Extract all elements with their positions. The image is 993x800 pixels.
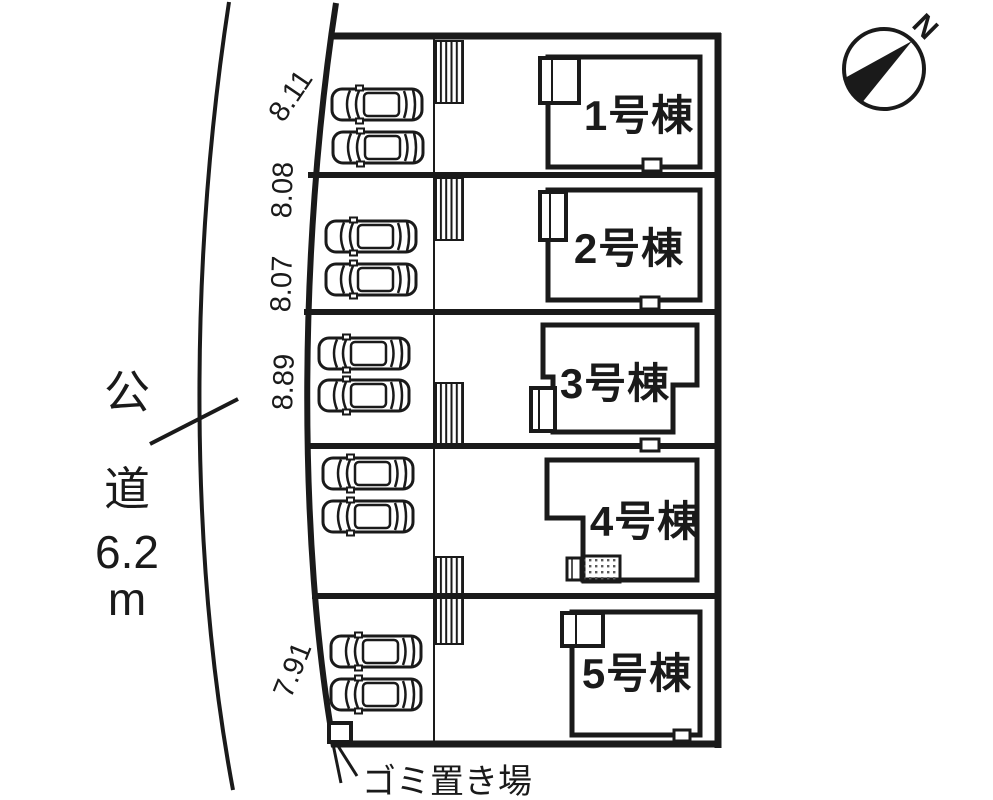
car-top-view-icon — [319, 377, 409, 415]
steps-hatch-icon — [436, 557, 463, 644]
meter-box — [674, 730, 690, 741]
leader-line — [338, 746, 357, 776]
frontage-dim-5: 7.91 — [268, 638, 319, 702]
building-3: 3号棟 — [531, 325, 697, 451]
frontage-dim-2: 8.08 — [266, 161, 300, 219]
building-2-label: 2号棟 — [574, 225, 684, 272]
frontage-dimensions: 8.11 8.08 8.07 8.89 7.91 — [263, 65, 320, 703]
building-1: 1号棟 — [540, 57, 700, 171]
building-3-label: 3号棟 — [560, 360, 670, 407]
building-5-label: 5号棟 — [582, 650, 692, 697]
road-tick-mark — [150, 399, 238, 444]
car-top-view-icon — [332, 86, 422, 124]
entrance-porch — [540, 192, 566, 240]
entrance-porch — [562, 613, 603, 646]
meter-box — [643, 159, 661, 171]
frontage-dim-1: 8.11 — [263, 65, 320, 128]
frontage-dim-3: 8.07 — [265, 255, 299, 313]
garbage-area: ゴミ置き場 — [329, 723, 532, 800]
building-4: 4号棟 — [547, 460, 700, 582]
road-left-edge — [199, 2, 233, 790]
meter-box — [641, 439, 659, 451]
hatch-strips — [436, 41, 463, 644]
north-compass: N — [843, 8, 944, 109]
car-top-view-icon — [323, 498, 413, 536]
car-top-view-icon — [326, 218, 416, 256]
parking-cars — [319, 86, 423, 714]
road-label-char: 道 — [104, 463, 150, 515]
car-top-view-icon — [331, 633, 421, 671]
car-top-view-icon — [333, 129, 423, 167]
entrance-porch — [531, 388, 555, 431]
car-top-view-icon — [331, 676, 421, 714]
road-label-char: 公 — [104, 366, 150, 418]
site-plan: 公 道 6.2 m — [0, 0, 993, 800]
road-label: 公 道 6.2 m — [95, 366, 159, 625]
garbage-area-marker — [329, 723, 351, 742]
steps-hatch-icon — [436, 383, 463, 445]
building-5: 5号棟 — [562, 612, 700, 741]
road-label-char: 6.2 — [95, 526, 159, 578]
entrance-step — [567, 558, 581, 580]
entrance-porch — [540, 58, 579, 103]
building-2: 2号棟 — [540, 190, 700, 309]
steps-hatch-icon — [436, 178, 463, 240]
car-top-view-icon — [326, 261, 416, 299]
garbage-area-label: ゴミ置き場 — [362, 763, 532, 800]
frontage-dim-4: 8.89 — [267, 353, 301, 411]
car-top-view-icon — [319, 335, 409, 373]
public-road — [150, 2, 238, 790]
building-1-label: 1号棟 — [584, 92, 694, 139]
building-4-label: 4号棟 — [590, 498, 700, 545]
car-top-view-icon — [323, 455, 413, 493]
steps-hatch-icon — [436, 41, 463, 103]
road-label-char: m — [108, 573, 146, 625]
meter-box — [641, 297, 659, 309]
entrance-porch — [583, 556, 620, 582]
